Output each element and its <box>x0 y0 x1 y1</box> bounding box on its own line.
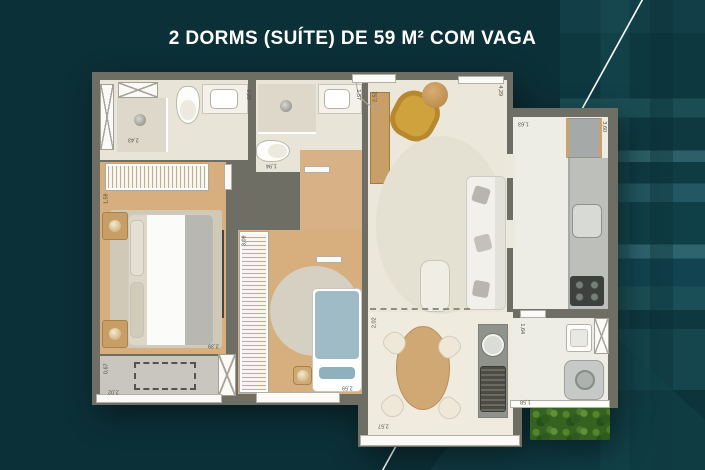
terrace-grill <box>480 366 506 412</box>
measurement-terrace-depth: 2,02 <box>373 317 379 328</box>
washer-door-icon <box>575 370 595 390</box>
measurement-master-width: 2,39 <box>208 342 219 348</box>
bedroom2-closet-louver <box>240 232 268 392</box>
suite-sink-basin <box>210 89 238 109</box>
suite-closet-cabinet <box>100 84 114 150</box>
sofa-backrest <box>495 177 505 309</box>
measurement-bedroom2-depth: 3,09 <box>243 235 249 246</box>
balcony-parapet <box>96 394 222 403</box>
sofa-pillow <box>471 185 491 205</box>
sofa-pillow <box>473 233 492 252</box>
bedroom2-window-sill <box>256 392 340 403</box>
sofa-pillow <box>472 280 491 299</box>
living-top-window <box>458 76 504 84</box>
kitchen-fridge <box>566 118 602 158</box>
terrace-parapet <box>360 435 520 446</box>
island-round-sink <box>482 334 504 356</box>
suite-top-cabinet <box>118 82 158 98</box>
planter-greenery <box>530 408 610 440</box>
laundry-tank-sink <box>566 324 592 352</box>
bedroom2-bed-duvet <box>315 291 359 359</box>
living-coffee-table <box>420 260 450 312</box>
entry-door <box>352 74 396 83</box>
measurement-balcony-depth: 0,67 <box>105 363 111 374</box>
measurement-bath2-width: 1,94 <box>266 162 277 168</box>
lamp-icon <box>109 328 121 340</box>
service-door <box>520 310 546 318</box>
master-nightstand-right <box>102 320 128 348</box>
shower-head-icon <box>280 100 292 112</box>
living-terrace-dashed-divider <box>370 308 470 310</box>
master-bed-pillow <box>130 220 144 276</box>
service-cabinet <box>594 318 609 354</box>
living-side-table <box>422 82 448 108</box>
lamp-icon <box>297 370 309 382</box>
measurement-balcony-width: 2,02 <box>108 388 119 394</box>
measurement-service-width: 1,58 <box>520 398 531 404</box>
measurement-kitchen-entry: 1,63 <box>518 120 529 126</box>
washing-machine <box>564 360 604 400</box>
measurement-service-entry: 1,64 <box>519 323 525 334</box>
balcony-ac-dashed-area <box>134 362 196 390</box>
lamp-icon <box>109 220 121 232</box>
kitchen-passage-2 <box>505 220 515 248</box>
tank-basin <box>570 329 588 347</box>
measurement-suite-sink: 1,22 <box>245 89 251 100</box>
measurement-suite-shower: 2,43 <box>128 136 139 142</box>
suite-toilet <box>176 86 200 124</box>
master-closet-louver <box>106 164 208 190</box>
measurement-kitchen-depth: 3,60 <box>601 121 607 132</box>
master-nightstand-left <box>102 212 128 240</box>
bedroom2-bed-pillow <box>319 367 355 379</box>
master-bed-pillow <box>130 282 144 338</box>
measurement-master-side: 1,59 <box>105 193 111 204</box>
bath2-toilet <box>256 140 290 162</box>
measurement-bedroom2-width: 2,59 <box>342 384 353 390</box>
page-title: 2 DORMS (SUÍTE) DE 59 M² COM VAGA <box>0 28 705 50</box>
kitchen-sink <box>572 204 602 238</box>
bath2-sink-basin <box>324 89 350 109</box>
bedroom2-nightstand <box>293 366 312 385</box>
balcony-cabinet <box>218 354 236 396</box>
measurement-bath2-sink: 1,57 <box>355 89 361 100</box>
master-bedroom-door <box>224 164 232 190</box>
measurement-terrace-width: 2,57 <box>378 422 389 428</box>
measurement-living-depth: 4,29 <box>497 85 503 96</box>
measurement-living-sideboard: 2,52 <box>374 91 380 102</box>
living-sofa <box>466 176 506 310</box>
shower-head-icon <box>134 114 146 126</box>
kitchen-cooktop <box>570 276 604 306</box>
bath2-door <box>304 166 330 173</box>
kitchen-passage <box>505 154 515 178</box>
bedroom2-single-bed <box>312 288 362 392</box>
floor-plan: 2,43 1,22 1,57 1,94 1,59 2,39 0,67 2,02 … <box>90 70 630 455</box>
bedroom2-door <box>316 256 342 263</box>
